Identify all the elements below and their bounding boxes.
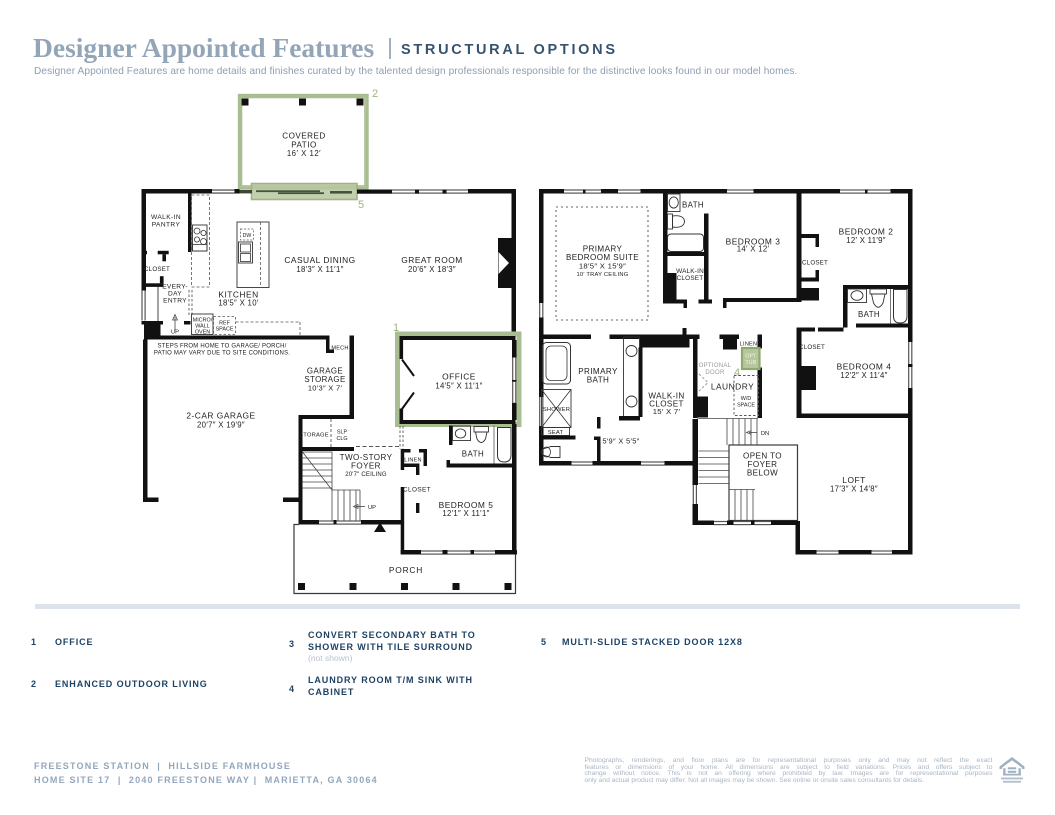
svg-text:10′ TRAY CEILING: 10′ TRAY CEILING bbox=[577, 272, 629, 278]
svg-text:COVERED: COVERED bbox=[282, 132, 326, 141]
svg-text:CLG: CLG bbox=[336, 436, 347, 442]
svg-text:17′3″ X 14′8″: 17′3″ X 14′8″ bbox=[830, 485, 878, 494]
svg-text:18′5″ X 10′: 18′5″ X 10′ bbox=[218, 299, 258, 308]
svg-text:CASUAL DINING: CASUAL DINING bbox=[284, 255, 355, 265]
svg-text:UP: UP bbox=[171, 330, 179, 336]
svg-text:BATH: BATH bbox=[462, 450, 484, 459]
svg-text:STEPS FROM HOME TO GARAGE/ POR: STEPS FROM HOME TO GARAGE/ PORCH/ bbox=[157, 344, 286, 350]
svg-text:WALK-IN: WALK-IN bbox=[676, 268, 704, 275]
svg-text:BATH: BATH bbox=[587, 376, 610, 385]
svg-text:20′7″ X 19′9″: 20′7″ X 19′9″ bbox=[197, 421, 245, 430]
svg-text:12′ X 11′9″: 12′ X 11′9″ bbox=[846, 236, 886, 245]
svg-text:18′3″ X 11′1″: 18′3″ X 11′1″ bbox=[296, 265, 343, 274]
svg-text:W/D: W/D bbox=[741, 396, 752, 402]
svg-text:14′5″ X 11′1″: 14′5″ X 11′1″ bbox=[435, 382, 482, 391]
svg-text:WALK-IN: WALK-IN bbox=[151, 214, 181, 221]
svg-text:SEAT: SEAT bbox=[548, 430, 564, 436]
svg-text:12′2″ X 11′4″: 12′2″ X 11′4″ bbox=[840, 371, 887, 380]
svg-text:UP: UP bbox=[368, 505, 376, 511]
svg-text:BEDROOM 2: BEDROOM 2 bbox=[839, 227, 894, 237]
svg-text:10′3″ X 7′: 10′3″ X 7′ bbox=[308, 384, 343, 393]
svg-text:SHOWER: SHOWER bbox=[543, 407, 570, 413]
svg-text:2-CAR GARAGE: 2-CAR GARAGE bbox=[186, 411, 255, 421]
svg-text:PORCH: PORCH bbox=[389, 565, 423, 575]
svg-text:16′ X 12′: 16′ X 12′ bbox=[287, 149, 321, 158]
svg-text:OVEN: OVEN bbox=[195, 330, 210, 336]
svg-text:LINEN: LINEN bbox=[404, 458, 421, 464]
svg-text:BATH: BATH bbox=[682, 201, 704, 210]
svg-text:CLOSET: CLOSET bbox=[802, 260, 828, 267]
svg-text:DW: DW bbox=[243, 233, 252, 239]
svg-text:1: 1 bbox=[393, 322, 399, 334]
svg-text:2: 2 bbox=[372, 88, 378, 100]
svg-text:CLOSET: CLOSET bbox=[144, 266, 170, 273]
svg-text:4: 4 bbox=[734, 367, 740, 379]
svg-text:14′ X 12′: 14′ X 12′ bbox=[737, 245, 770, 254]
svg-text:12′1″ X 11′1″: 12′1″ X 11′1″ bbox=[442, 509, 489, 518]
svg-text:MECH: MECH bbox=[331, 346, 348, 352]
svg-text:EVERY-: EVERY- bbox=[162, 284, 188, 291]
svg-text:5: 5 bbox=[358, 199, 364, 211]
svg-text:20′7″ CEILING: 20′7″ CEILING bbox=[345, 472, 387, 478]
svg-text:CLOSET: CLOSET bbox=[799, 344, 825, 351]
svg-text:CLOSET: CLOSET bbox=[403, 487, 431, 494]
svg-text:ENTRY: ENTRY bbox=[163, 298, 187, 305]
svg-text:BELOW: BELOW bbox=[747, 469, 778, 478]
svg-text:20′6″ X 18′3″: 20′6″ X 18′3″ bbox=[408, 265, 456, 274]
svg-text:18′5″ X 15′9″: 18′5″ X 15′9″ bbox=[579, 262, 626, 271]
svg-text:OPT: OPT bbox=[745, 354, 757, 360]
svg-text:LINEN: LINEN bbox=[740, 342, 757, 348]
svg-text:FOYER: FOYER bbox=[351, 462, 381, 471]
svg-text:DN: DN bbox=[761, 431, 769, 437]
svg-text:DAY: DAY bbox=[168, 291, 182, 298]
svg-text:SPACE: SPACE bbox=[737, 403, 755, 409]
svg-text:GREAT ROOM: GREAT ROOM bbox=[401, 255, 462, 265]
svg-text:SPACE: SPACE bbox=[216, 327, 234, 333]
svg-text:BEDROOM 4: BEDROOM 4 bbox=[837, 362, 892, 372]
svg-text:LAUNDRY: LAUNDRY bbox=[711, 382, 754, 392]
svg-text:5′9″ X 5′5″: 5′9″ X 5′5″ bbox=[602, 437, 639, 446]
svg-text:15′ X 7′: 15′ X 7′ bbox=[653, 407, 681, 416]
svg-text:TUB: TUB bbox=[745, 360, 756, 366]
svg-text:BATH: BATH bbox=[858, 310, 880, 319]
svg-text:OFFICE: OFFICE bbox=[442, 372, 476, 382]
svg-text:STORAGE: STORAGE bbox=[299, 433, 329, 439]
svg-text:PANTRY: PANTRY bbox=[152, 222, 181, 229]
svg-text:SLP: SLP bbox=[337, 430, 348, 436]
svg-text:LOFT: LOFT bbox=[842, 475, 865, 485]
svg-text:DOOR: DOOR bbox=[705, 370, 725, 376]
svg-text:CLOSET: CLOSET bbox=[677, 275, 704, 282]
svg-text:PATIO MAY VARY DUE TO SITE CON: PATIO MAY VARY DUE TO SITE CONDITIONS. bbox=[154, 351, 290, 357]
svg-text:OPTIONAL: OPTIONAL bbox=[699, 363, 732, 369]
